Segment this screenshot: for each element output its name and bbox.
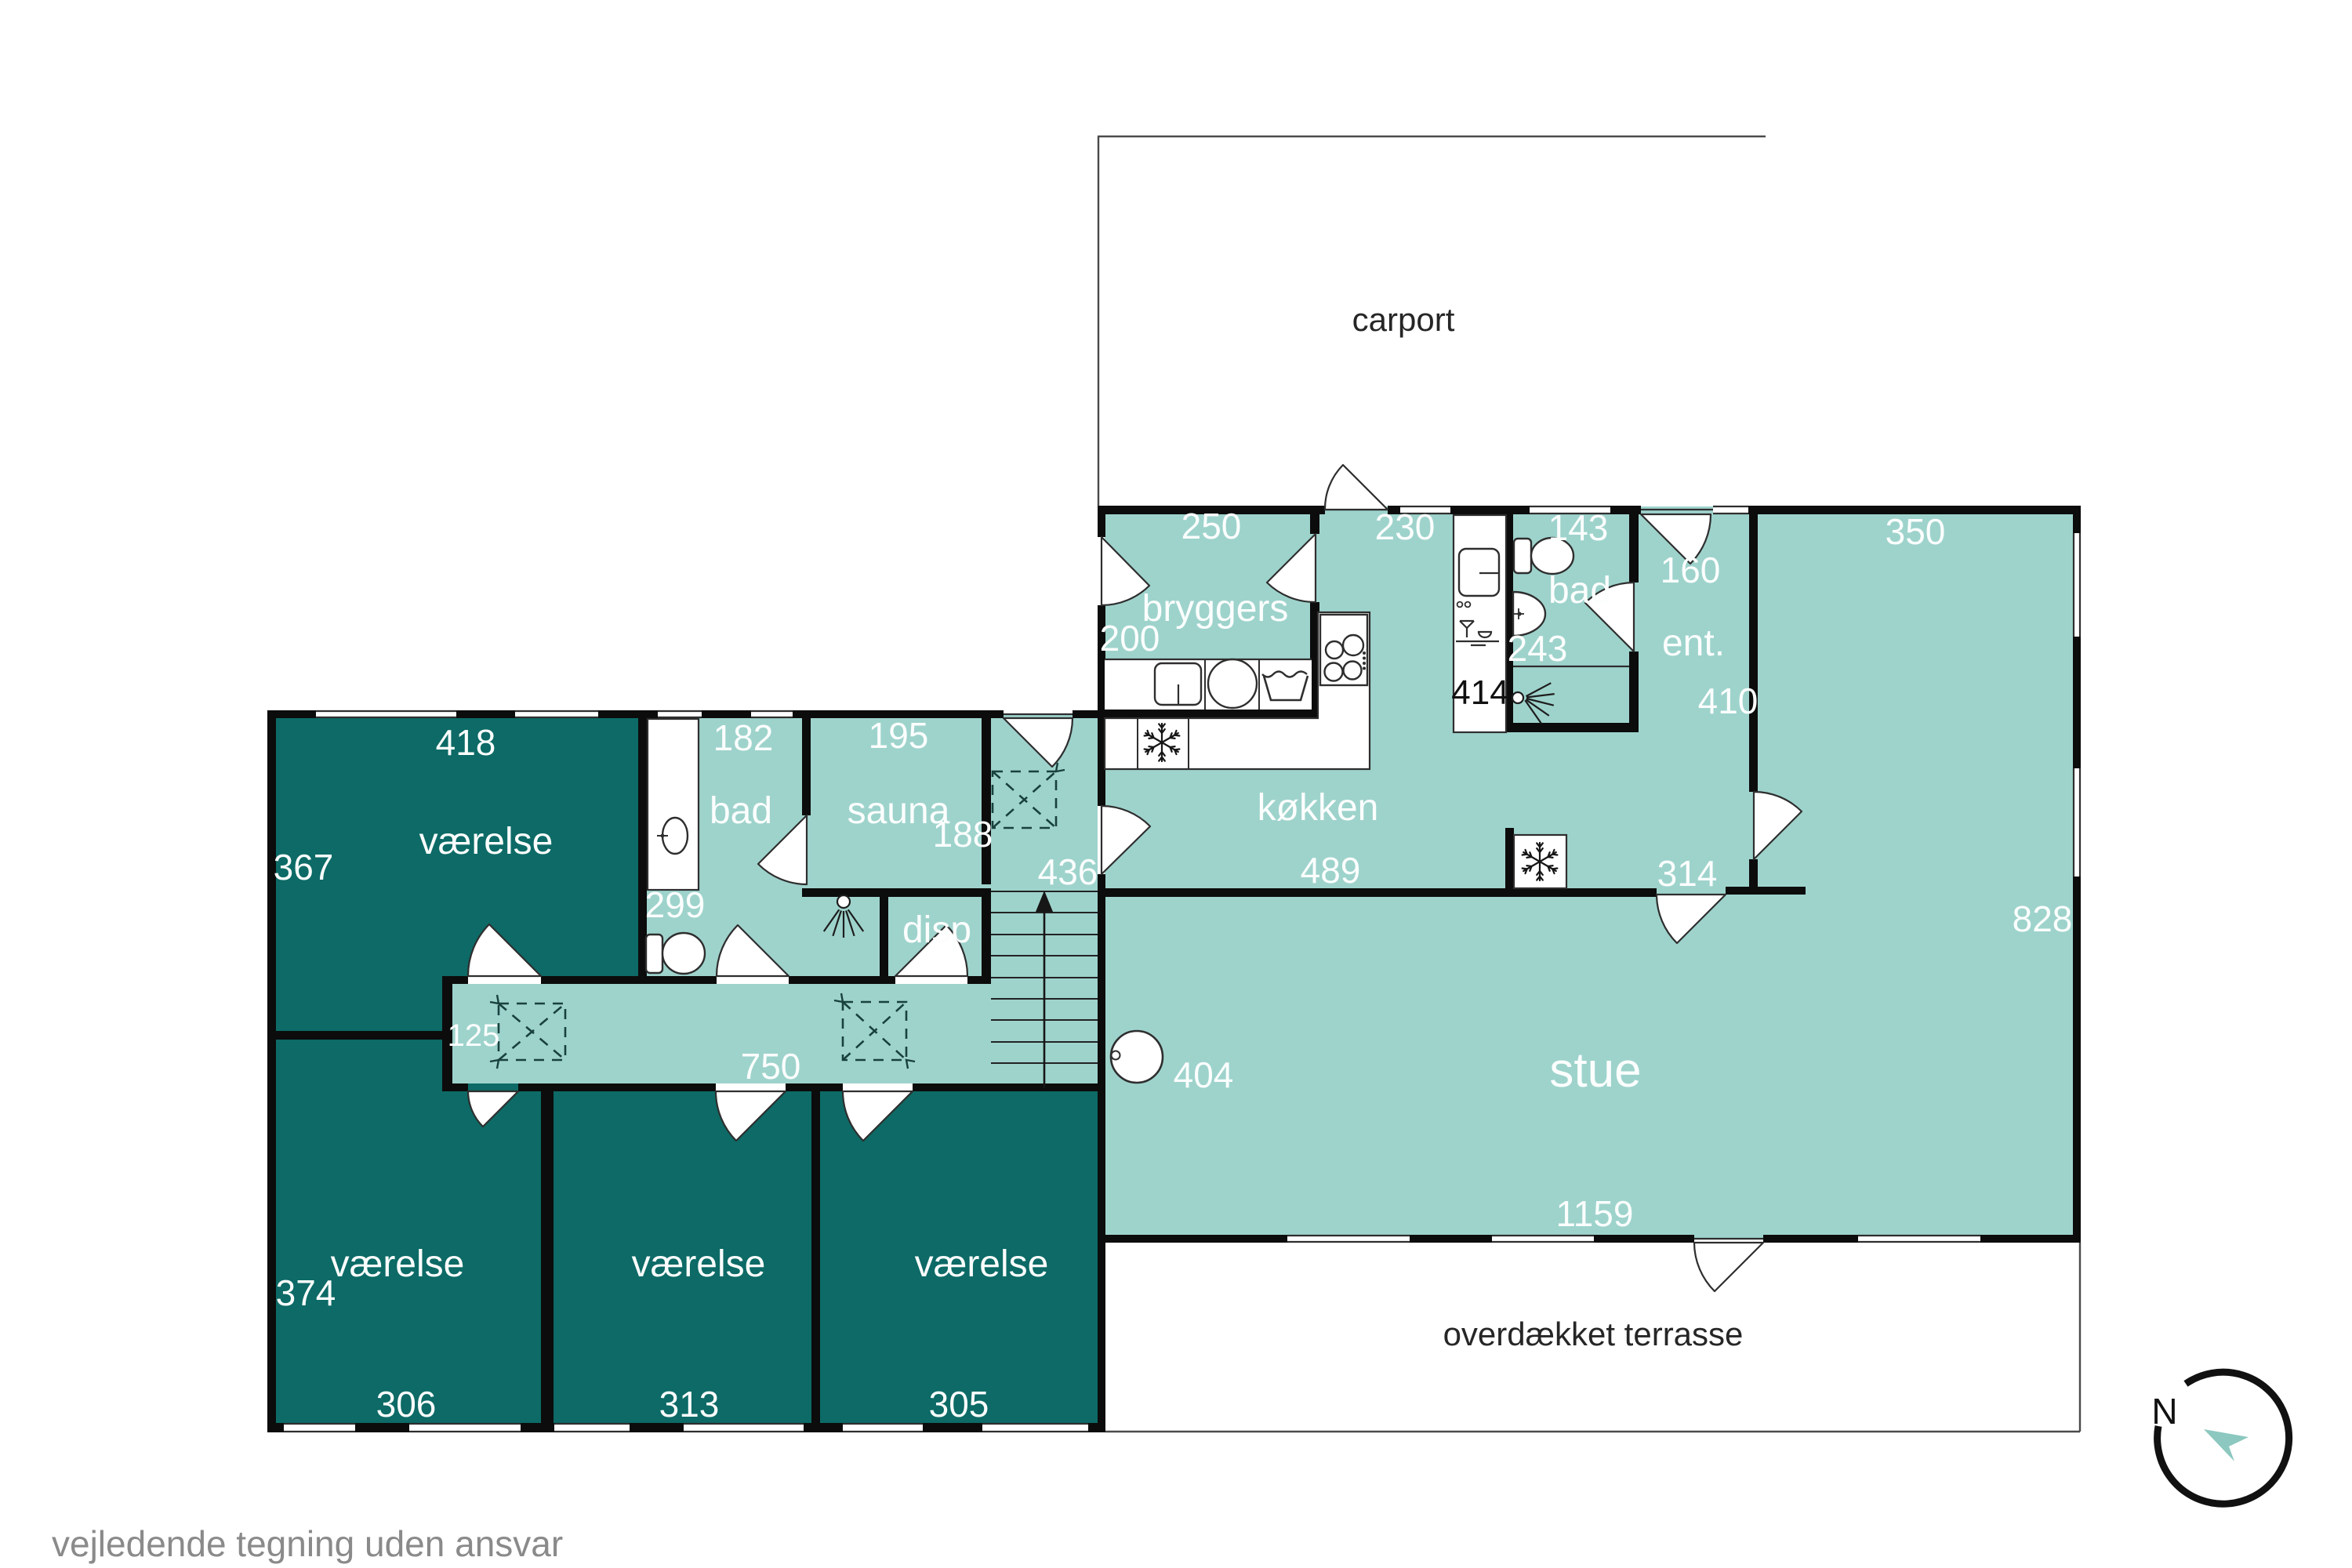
svg-text:305: 305 — [929, 1384, 989, 1425]
svg-text:stue: stue — [1549, 1044, 1641, 1098]
svg-text:bad: bad — [1548, 570, 1611, 612]
svg-text:køkken: køkken — [1258, 787, 1379, 829]
svg-text:828: 828 — [2013, 898, 2073, 939]
svg-text:200: 200 — [1100, 618, 1160, 659]
svg-text:374: 374 — [276, 1272, 336, 1313]
svg-text:ent.: ent. — [1662, 622, 1725, 664]
svg-text:195: 195 — [869, 715, 929, 756]
svg-text:414: 414 — [1451, 673, 1508, 712]
svg-text:182: 182 — [713, 717, 774, 758]
svg-text:367: 367 — [274, 847, 334, 887]
svg-text:250: 250 — [1181, 506, 1242, 546]
svg-text:bryggers: bryggers — [1142, 588, 1289, 630]
svg-text:bad: bad — [710, 790, 772, 832]
svg-text:143: 143 — [1548, 507, 1609, 548]
svg-text:125: 125 — [448, 1018, 500, 1053]
svg-text:188: 188 — [933, 814, 993, 855]
svg-text:værelse: værelse — [632, 1243, 766, 1285]
svg-text:313: 313 — [659, 1384, 720, 1425]
svg-text:vejledende tegning uden ansvar: vejledende tegning uden ansvar — [52, 1523, 563, 1564]
svg-text:160: 160 — [1661, 550, 1721, 590]
svg-text:489: 489 — [1301, 850, 1361, 891]
svg-text:410: 410 — [1698, 681, 1759, 721]
svg-text:værelse: værelse — [915, 1243, 1049, 1285]
svg-text:1159: 1159 — [1556, 1193, 1634, 1234]
svg-text:299: 299 — [645, 884, 706, 925]
svg-text:overdækket terrasse: overdækket terrasse — [1443, 1316, 1744, 1352]
svg-text:230: 230 — [1375, 506, 1436, 547]
svg-text:750: 750 — [741, 1046, 801, 1087]
svg-text:disp: disp — [902, 909, 971, 951]
svg-text:436: 436 — [1038, 851, 1098, 892]
svg-text:værelse: værelse — [419, 821, 554, 862]
svg-text:418: 418 — [436, 722, 496, 763]
svg-text:350: 350 — [1886, 511, 1946, 552]
svg-text:værelse: værelse — [331, 1243, 465, 1285]
svg-text:N: N — [2151, 1391, 2177, 1432]
svg-text:306: 306 — [376, 1384, 437, 1425]
svg-text:404: 404 — [1174, 1054, 1234, 1095]
svg-text:314: 314 — [1657, 853, 1718, 894]
svg-text:carport: carport — [1352, 301, 1455, 338]
svg-text:243: 243 — [1508, 628, 1568, 669]
